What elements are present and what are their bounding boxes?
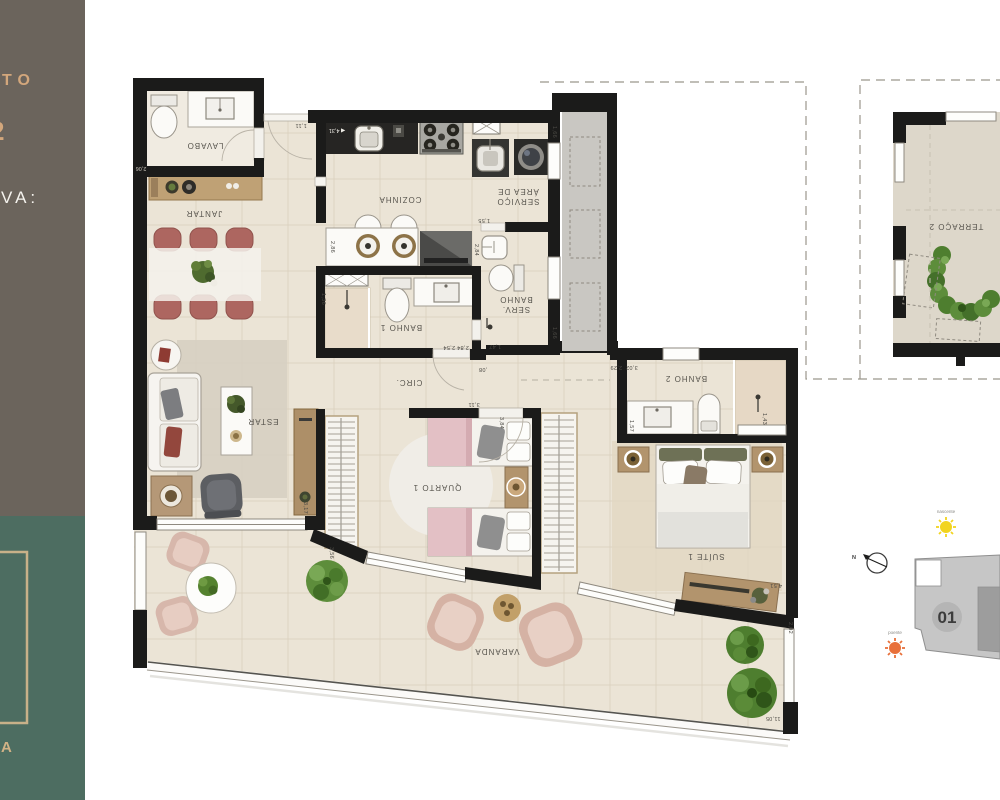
svg-text:JANTAR: JANTAR	[186, 209, 223, 218]
svg-text:3,56: 3,56	[328, 547, 334, 559]
svg-text:1,11: 1,11	[295, 122, 307, 128]
svg-text:N: N	[852, 555, 856, 561]
svg-text:QUARTO 1: QUARTO 1	[413, 483, 462, 492]
svg-text:VA:: VA:	[1, 188, 39, 207]
svg-text:COZINHA: COZINHA	[379, 195, 422, 204]
svg-text:3,02 2,29: 3,02 2,29	[610, 364, 637, 370]
svg-text:BANHO 2: BANHO 2	[665, 374, 707, 383]
svg-text:◀ 4,31: ◀ 4,31	[329, 127, 345, 133]
svg-text:A: A	[1, 739, 12, 756]
svg-text:4,51: 4,51	[770, 582, 782, 588]
svg-text:2: 2	[0, 116, 4, 146]
svg-text:BANHO: BANHO	[499, 295, 532, 304]
svg-text:LAVABO: LAVABO	[187, 141, 224, 150]
svg-text:1,55: 1,55	[478, 217, 490, 223]
svg-text:,08: ,08	[479, 366, 488, 372]
svg-text:2,86: 2,86	[329, 241, 335, 253]
svg-text:01: 01	[938, 608, 957, 627]
svg-text:11,05: 11,05	[766, 715, 781, 721]
svg-text:3,17: 3,17	[302, 502, 308, 514]
svg-text:3,11: 3,11	[468, 401, 480, 407]
svg-text:2,84: 2,84	[473, 244, 479, 256]
svg-text:SUÍTE 1: SUÍTE 1	[687, 552, 724, 561]
svg-text:2,84 2,54: 2,84 2,54	[443, 344, 469, 350]
svg-text:VARANDA: VARANDA	[474, 647, 519, 656]
svg-text:1,66: 1,66	[551, 126, 557, 138]
svg-text:1,43: 1,43	[761, 413, 767, 425]
svg-text:poente: poente	[888, 630, 902, 635]
svg-text:SERVIÇO: SERVIÇO	[497, 197, 540, 206]
svg-text:2,06: 2,06	[136, 165, 147, 171]
svg-text:3,84: 3,84	[498, 417, 504, 429]
svg-text:CIRC.: CIRC.	[396, 378, 423, 387]
svg-text:nascente: nascente	[937, 509, 956, 514]
svg-text:1,47: 1,47	[489, 343, 501, 349]
svg-text:1,36: 1,36	[320, 293, 326, 305]
svg-text:1,57: 1,57	[628, 420, 634, 432]
svg-text:2,02: 2,02	[787, 622, 793, 634]
svg-text:ESTAR: ESTAR	[247, 417, 278, 426]
svg-text:1,66: 1,66	[551, 327, 557, 339]
svg-text:SERV.: SERV.	[502, 305, 530, 314]
svg-text:ÁREA DE: ÁREA DE	[497, 187, 539, 196]
svg-text:TERRAÇO 2: TERRAÇO 2	[929, 222, 984, 231]
svg-text:BANHO 1: BANHO 1	[380, 323, 422, 332]
svg-text:TO: TO	[2, 72, 36, 89]
